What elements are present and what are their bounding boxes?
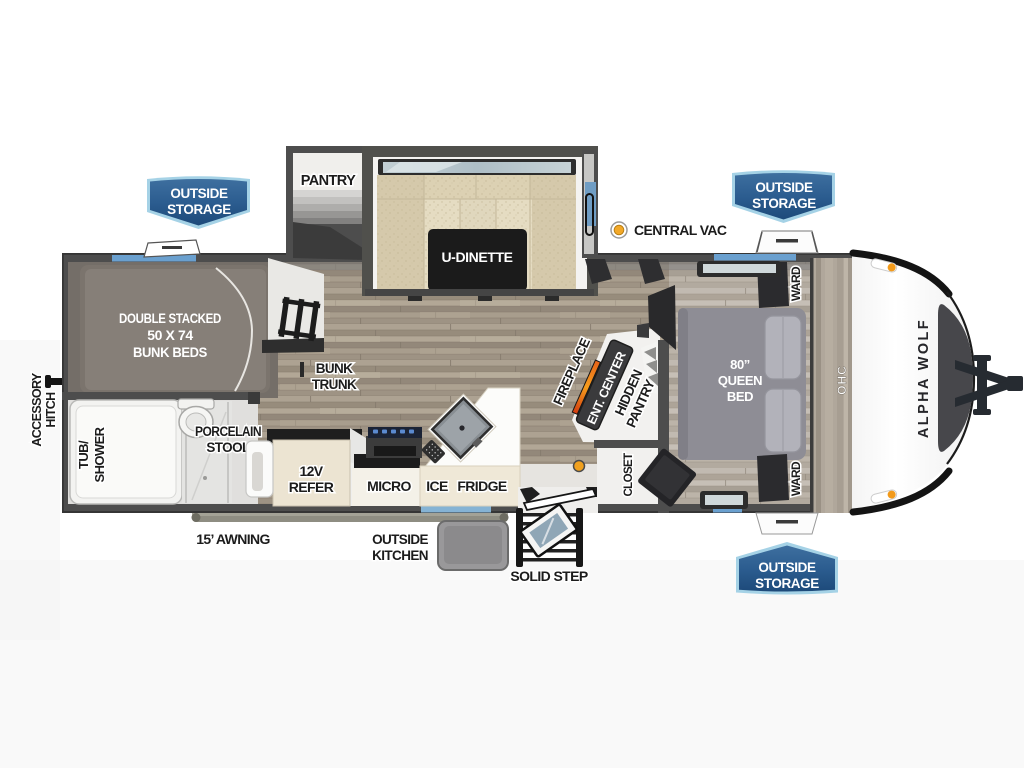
svg-text:STORAGE: STORAGE [755, 576, 819, 591]
svg-text:WARD: WARD [789, 461, 803, 496]
svg-text:KITCHEN: KITCHEN [372, 548, 428, 563]
svg-text:HITCH: HITCH [44, 392, 58, 428]
svg-text:TUB/: TUB/ [76, 440, 91, 469]
svg-text:STOOL: STOOL [206, 440, 250, 455]
svg-text:DOUBLE STACKED: DOUBLE STACKED [119, 310, 221, 326]
svg-text:OUTSIDE: OUTSIDE [372, 532, 428, 547]
svg-text:REFER: REFER [289, 479, 334, 495]
svg-text:U-DINETTE: U-DINETTE [441, 249, 512, 265]
svg-text:PORCELAIN: PORCELAIN [195, 424, 261, 439]
svg-text:15’ AWNING: 15’ AWNING [196, 531, 270, 547]
svg-text:MICRO: MICRO [367, 478, 411, 494]
svg-text:WARD: WARD [789, 266, 803, 301]
svg-text:BUNK BEDS: BUNK BEDS [133, 344, 207, 360]
svg-text:STORAGE: STORAGE [752, 196, 816, 211]
svg-text:SOLID STEP: SOLID STEP [510, 568, 587, 584]
svg-text:50 X 74: 50 X 74 [147, 327, 193, 343]
svg-text:ALPHA WOLF: ALPHA WOLF [916, 318, 932, 438]
svg-text:80”: 80” [730, 357, 750, 372]
svg-text:BED: BED [727, 389, 753, 404]
svg-text:CLOSET: CLOSET [623, 453, 635, 497]
svg-text:SHOWER: SHOWER [92, 426, 107, 482]
svg-text:OUTSIDE: OUTSIDE [170, 186, 228, 201]
svg-text:CENTRAL VAC: CENTRAL VAC [634, 222, 727, 238]
svg-text:QUEEN: QUEEN [718, 373, 762, 388]
svg-text:12V: 12V [299, 463, 323, 479]
svg-text:ACCESSORY: ACCESSORY [30, 372, 44, 447]
svg-text:TRUNK: TRUNK [312, 377, 357, 392]
svg-text:OUTSIDE: OUTSIDE [755, 180, 813, 195]
svg-text:BUNK: BUNK [316, 361, 353, 376]
svg-text:OUTSIDE: OUTSIDE [758, 560, 816, 575]
svg-text:FRIDGE: FRIDGE [457, 478, 507, 494]
svg-text:OHC: OHC [835, 365, 849, 395]
svg-text:PANTRY: PANTRY [301, 173, 356, 189]
svg-text:ICE: ICE [426, 478, 448, 494]
svg-text:STORAGE: STORAGE [167, 202, 231, 217]
